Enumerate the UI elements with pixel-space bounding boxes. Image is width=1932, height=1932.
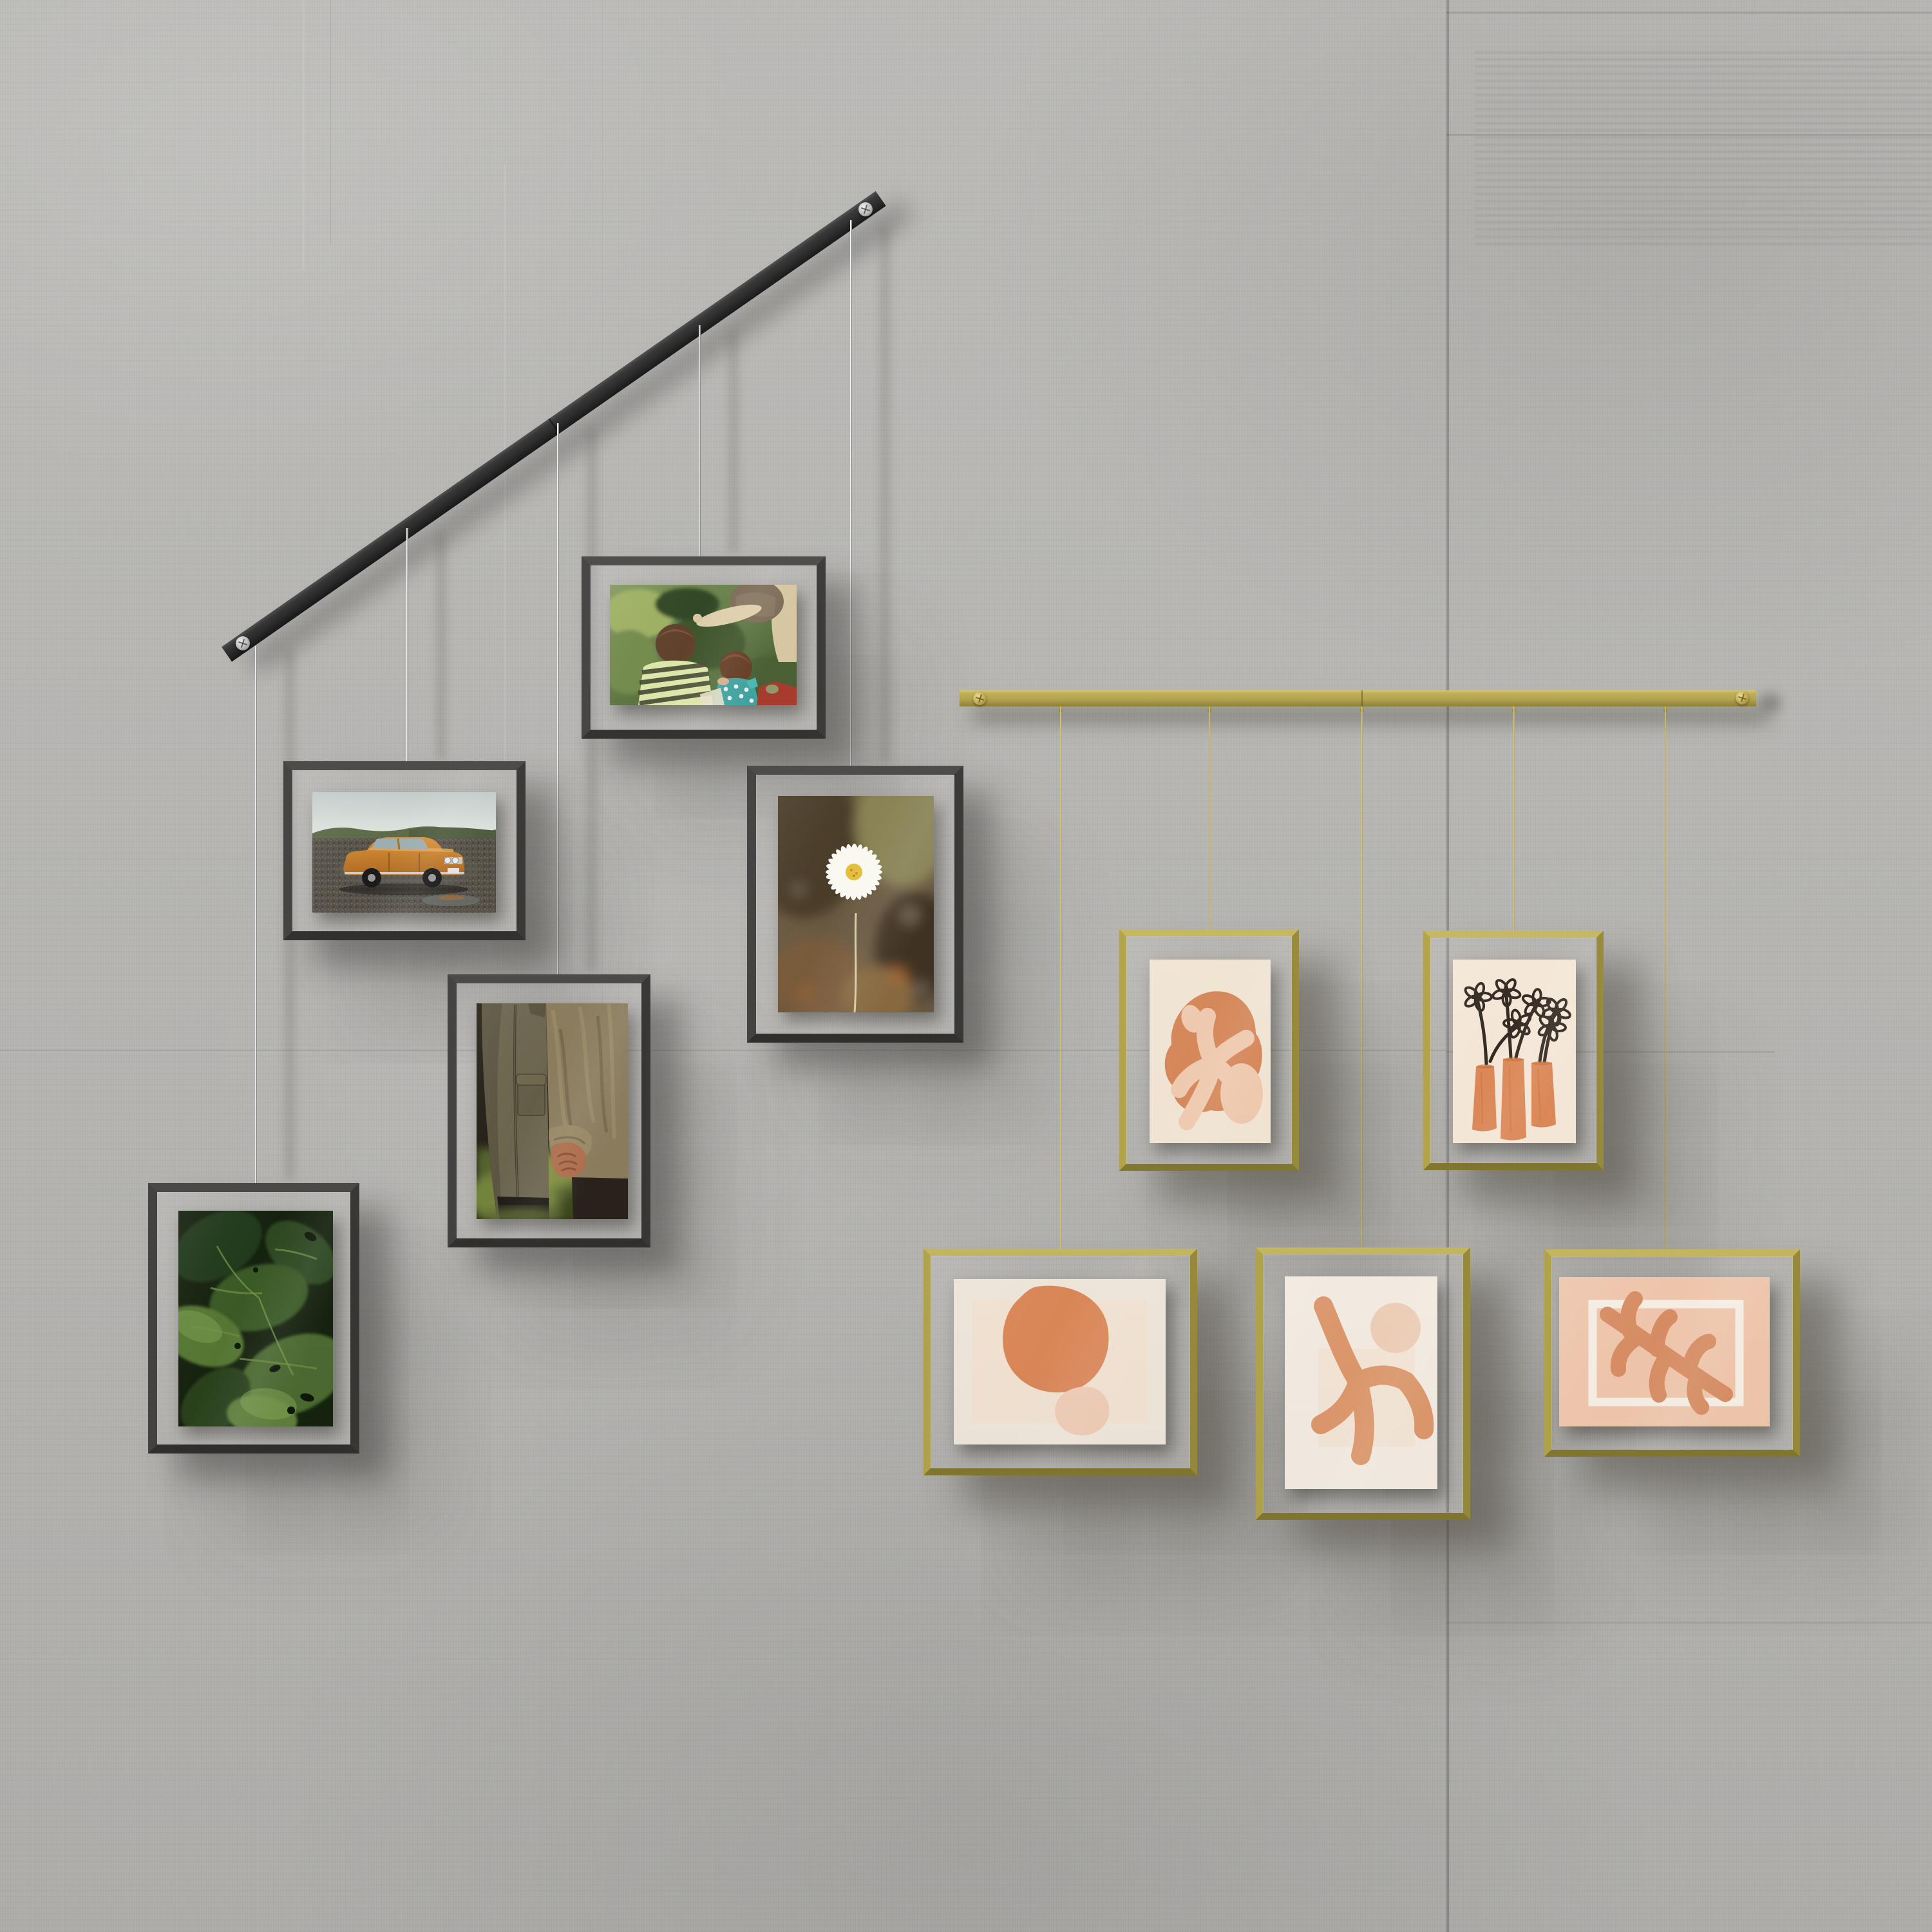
hanging-wire bbox=[699, 325, 701, 556]
hanging-wire-gold bbox=[1513, 706, 1515, 931]
photo-green-leaves bbox=[178, 1211, 333, 1426]
wire-shadow bbox=[437, 533, 445, 759]
photo-daisy bbox=[778, 796, 934, 1012]
hanging-wire bbox=[557, 423, 559, 974]
wall-seam-horizontal-top-right2 bbox=[1446, 12, 1932, 14]
rail-joint-seam bbox=[1361, 690, 1363, 706]
hanging-wire-gold bbox=[1209, 706, 1210, 929]
rail-screw-bottom-icon bbox=[236, 636, 250, 650]
hanging-wire bbox=[255, 646, 257, 1183]
frame-vases-art bbox=[1423, 931, 1604, 1170]
art-vases-flowers bbox=[1453, 960, 1576, 1143]
wall-stain-striations bbox=[1475, 52, 1932, 245]
hanging-wire-gold bbox=[1361, 706, 1363, 1247]
art-coral-cutout bbox=[1150, 960, 1271, 1143]
frame-daisy-photo bbox=[747, 766, 963, 1043]
wall-stain-drip2 bbox=[330, 0, 331, 245]
brass-horizontal-rail bbox=[960, 690, 1756, 706]
wall-stain-drip1 bbox=[303, 0, 305, 270]
rail-screw-right-icon bbox=[1736, 691, 1749, 705]
hanging-wire bbox=[850, 220, 852, 766]
hanging-wire-gold bbox=[1665, 706, 1666, 1249]
frame-coral-cutout-art bbox=[1119, 929, 1299, 1171]
frame-leaf-print-art bbox=[1544, 1249, 1800, 1457]
hanging-wire bbox=[406, 528, 408, 761]
frame-car-photo bbox=[283, 761, 526, 940]
frame-couple-photo bbox=[448, 974, 650, 1247]
rail-screw-top-icon bbox=[858, 202, 873, 216]
art-pebbles bbox=[954, 1279, 1166, 1444]
photo-couple-hands bbox=[477, 1003, 628, 1219]
photo-kids-garden bbox=[610, 585, 797, 705]
art-leaf-print bbox=[1559, 1277, 1770, 1426]
frame-kids-photo bbox=[582, 556, 826, 739]
wall-stain-smudge bbox=[1759, 693, 1781, 712]
art-coral-branch bbox=[1285, 1276, 1437, 1489]
wall-seam-horizontal-bottom-right bbox=[1446, 1622, 1932, 1624]
wall-seam-vertical-left bbox=[602, 0, 604, 1051]
hanging-wire-gold bbox=[1060, 706, 1061, 1249]
frame-coral-branch-art bbox=[1256, 1247, 1470, 1520]
photo-orange-car bbox=[312, 792, 496, 913]
frame-leaves-photo bbox=[148, 1183, 359, 1454]
rail-screw-left-icon bbox=[973, 692, 987, 705]
wall-seam-horizontal-top-right bbox=[1446, 134, 1932, 136]
wire-shadow bbox=[881, 225, 889, 762]
concrete-wall bbox=[0, 0, 1932, 1932]
frame-pebbles-art bbox=[923, 1249, 1197, 1475]
wire-shadow bbox=[730, 330, 737, 553]
